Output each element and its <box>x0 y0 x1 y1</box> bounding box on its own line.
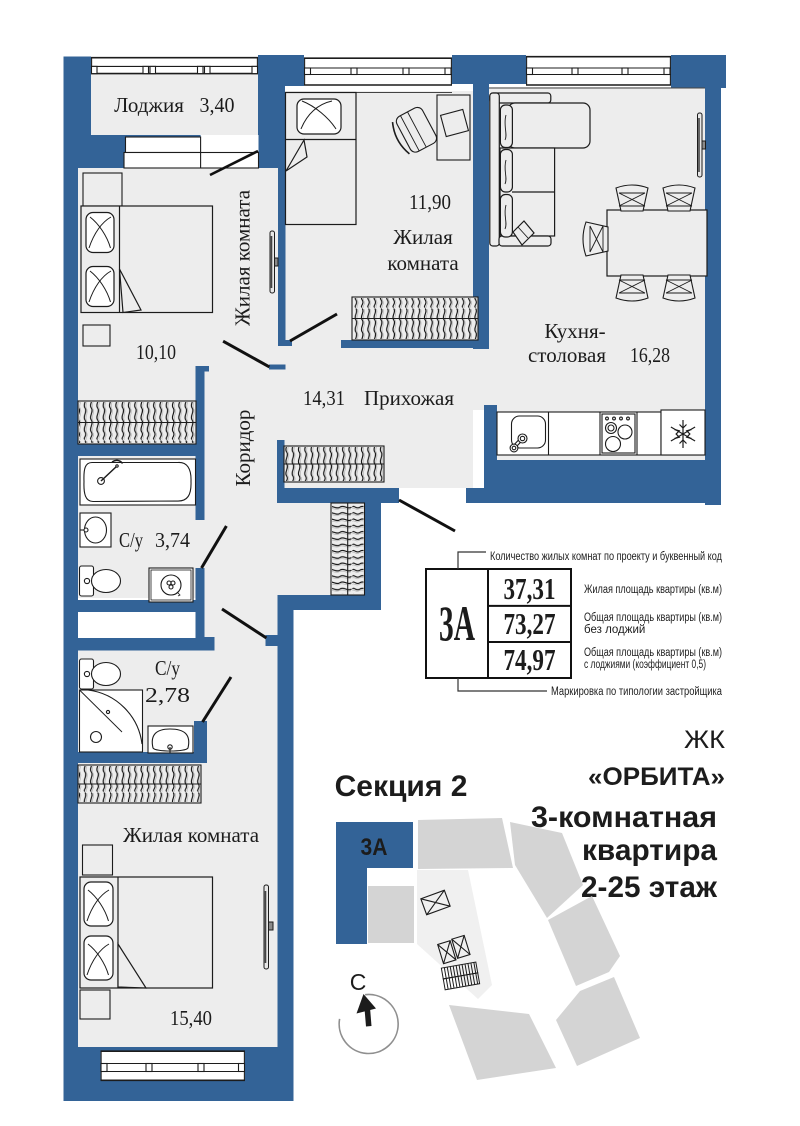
svg-text:Секция 2: Секция 2 <box>335 770 468 803</box>
svg-text:16,28: 16,28 <box>630 343 670 367</box>
svg-text:Жилая: Жилая <box>393 225 453 249</box>
svg-text:2-25 этаж: 2-25 этаж <box>581 871 718 904</box>
svg-text:3,40: 3,40 <box>200 93 235 117</box>
svg-text:11,90: 11,90 <box>409 190 451 214</box>
svg-text:с лоджиями (коэффициент 0,5): с лоджиями (коэффициент 0,5) <box>584 659 706 671</box>
svg-text:Лоджия: Лоджия <box>114 93 184 117</box>
svg-text:3,74: 3,74 <box>155 528 190 552</box>
svg-text:74,97: 74,97 <box>504 642 556 677</box>
svg-text:без лоджий: без лоджий <box>584 624 645 636</box>
svg-text:«ОРБИТА»: «ОРБИТА» <box>588 763 725 791</box>
svg-text:15,40: 15,40 <box>170 1006 212 1030</box>
svg-text:Жилая комната: Жилая комната <box>231 189 255 326</box>
svg-text:С/у: С/у <box>119 528 143 552</box>
svg-text:14,31: 14,31 <box>303 386 345 410</box>
svg-text:С/у: С/у <box>155 656 180 680</box>
svg-text:73,27: 73,27 <box>504 606 556 641</box>
svg-text:3-комнатная: 3-комнатная <box>531 801 717 834</box>
svg-text:10,10: 10,10 <box>136 340 176 364</box>
svg-text:комната: комната <box>387 251 459 275</box>
svg-text:Прихожая: Прихожая <box>364 386 454 410</box>
svg-text:3А: 3А <box>361 834 388 861</box>
svg-text:Кухня-: Кухня- <box>544 319 605 343</box>
svg-text:С: С <box>350 969 367 995</box>
svg-text:квартира: квартира <box>582 834 717 867</box>
svg-text:3А: 3А <box>439 595 475 651</box>
svg-text:Жилая комната: Жилая комната <box>123 823 260 847</box>
svg-text:столовая: столовая <box>528 343 606 367</box>
svg-text:37,31: 37,31 <box>504 571 556 606</box>
svg-text:ЖК: ЖК <box>684 726 725 754</box>
svg-text:Общая площадь квартиры (кв.м): Общая площадь квартиры (кв.м) <box>584 647 722 659</box>
svg-text:Количество жилых комнат по про: Количество жилых комнат по проекту и бук… <box>490 551 722 563</box>
svg-text:Маркировка по типологии застро: Маркировка по типологии застройщика <box>551 686 722 698</box>
svg-text:Жилая площадь квартиры (кв.м): Жилая площадь квартиры (кв.м) <box>584 584 722 596</box>
svg-text:Коридор: Коридор <box>231 410 255 487</box>
svg-text:2,78: 2,78 <box>145 683 190 707</box>
svg-text:Общая площадь квартиры (кв.м): Общая площадь квартиры (кв.м) <box>584 612 722 624</box>
